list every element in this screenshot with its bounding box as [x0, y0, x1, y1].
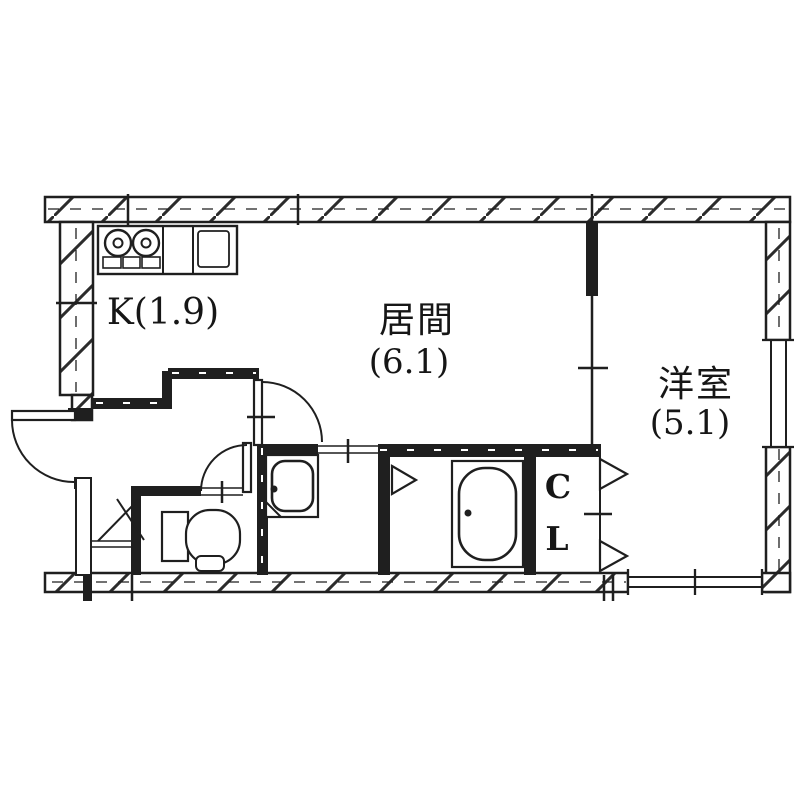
- wall-left-lower: [76, 478, 91, 575]
- wall-top: [45, 197, 790, 222]
- hall-door-leaf: [254, 380, 262, 445]
- toilet-tank: [162, 512, 188, 561]
- genkan-step-lines: [91, 541, 133, 547]
- wall-right-lower: [766, 447, 790, 592]
- toilet: [162, 510, 240, 571]
- toilet-door-leaf: [243, 443, 251, 492]
- wall-bath-left: [378, 451, 390, 575]
- window-bottom: [628, 569, 762, 595]
- interior-walls: [68, 222, 608, 601]
- floorplan-page: K(1.9) 居間 (6.1) 洋室 (5.1) C L: [0, 0, 800, 800]
- window-right-gap: [764, 340, 792, 447]
- washbasin-faucet-icon: [271, 486, 278, 493]
- stove-burner-left-center: [114, 239, 123, 248]
- window-right: [762, 340, 794, 447]
- bathtub: [452, 461, 523, 567]
- toilet-door-swing-arc: [201, 445, 247, 491]
- wall-bath-right: [524, 451, 536, 575]
- washbasin-unit: [266, 455, 318, 517]
- floorplan-canvas: K(1.9) 居間 (6.1) 洋室 (5.1) C L: [0, 0, 800, 800]
- closet-label-l: L: [545, 519, 568, 558]
- toilet-base: [196, 556, 224, 571]
- entrance-door-swing-arc: [12, 420, 74, 482]
- wall-toilet-top: [131, 486, 201, 496]
- wall-bottom-right: [762, 573, 790, 592]
- washbasin-bowl: [272, 461, 313, 511]
- kitchen-counter: [98, 226, 237, 274]
- entrance-door-leaf: [12, 411, 75, 420]
- stove-grill-1: [103, 257, 121, 268]
- kitchen-label: K(1.9): [107, 292, 219, 333]
- wall-kitchen-hall-right: [168, 368, 259, 379]
- hall-door-swing-arc: [262, 382, 322, 442]
- wall-partition-living-western: [586, 222, 598, 296]
- living-room-size: (6.1): [369, 342, 450, 382]
- bath-folding-door-icon: [392, 466, 416, 494]
- bathtub-drain-icon: [465, 510, 472, 517]
- stove-grill-3: [142, 257, 160, 268]
- western-room-size: (5.1): [650, 403, 731, 443]
- kitchen-sink: [198, 231, 229, 267]
- wall-right-upper: [766, 222, 790, 340]
- western-room-label: 洋室: [658, 364, 734, 405]
- stove-grill-2: [123, 257, 140, 268]
- wall-kitchen-hall-left: [93, 398, 170, 409]
- closet-folding-door-bottom-icon: [600, 541, 627, 571]
- stove-burner-right-center: [142, 239, 151, 248]
- living-room-label: 居間: [379, 300, 455, 341]
- closet-folding-door-top-icon: [600, 459, 627, 489]
- closet-label-c: C: [545, 467, 571, 506]
